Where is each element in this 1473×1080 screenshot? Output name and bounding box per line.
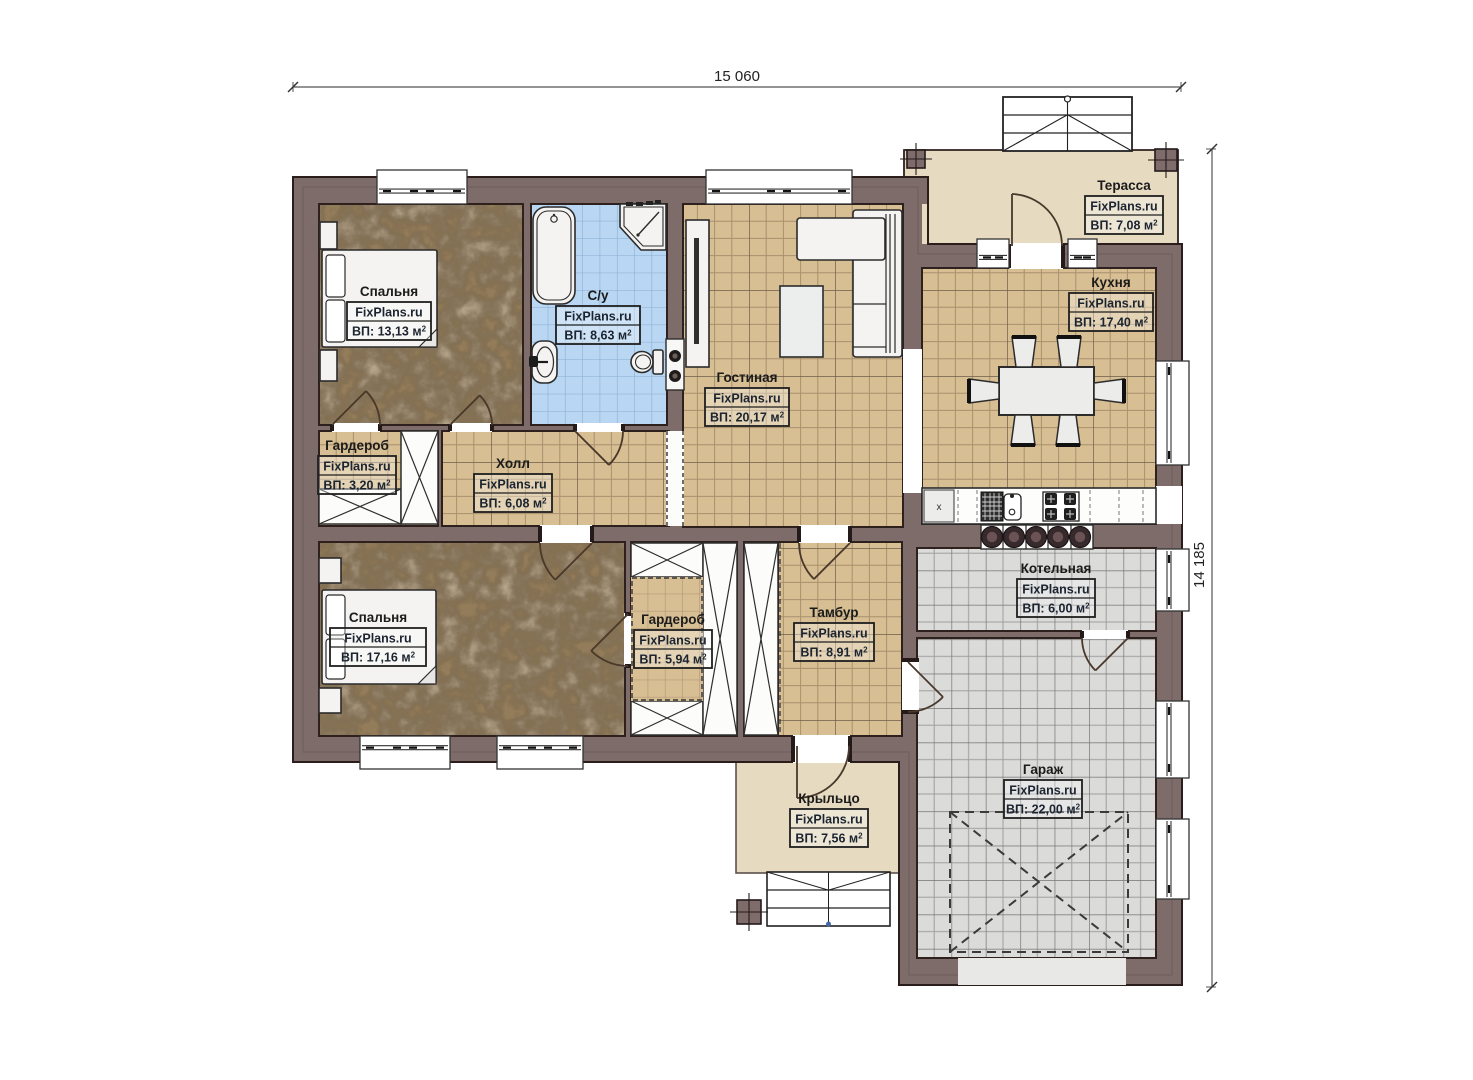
- svg-text:FixPlans.ru: FixPlans.ru: [1022, 583, 1089, 597]
- svg-text:Спальня: Спальня: [360, 284, 418, 299]
- svg-text:ВП: 6,08 м2: ВП: 6,08 м2: [479, 497, 547, 511]
- svg-text:ВП: 3,20 м2: ВП: 3,20 м2: [323, 479, 391, 493]
- svg-text:Терасса: Терасса: [1097, 178, 1151, 193]
- svg-text:FixPlans.ru: FixPlans.ru: [1090, 200, 1157, 214]
- svg-text:Крыльцо: Крыльцо: [798, 791, 859, 806]
- svg-text:ВП: 5,94 м2: ВП: 5,94 м2: [639, 653, 707, 667]
- svg-text:FixPlans.ru: FixPlans.ru: [800, 627, 867, 641]
- svg-text:ВП: 13,13 м2: ВП: 13,13 м2: [352, 325, 427, 339]
- svg-text:FixPlans.ru: FixPlans.ru: [713, 392, 780, 406]
- svg-text:Гардероб: Гардероб: [641, 612, 705, 627]
- svg-text:ВП: 17,40 м2: ВП: 17,40 м2: [1074, 316, 1149, 330]
- svg-text:Гараж: Гараж: [1023, 762, 1064, 777]
- svg-text:FixPlans.ru: FixPlans.ru: [564, 310, 631, 324]
- svg-text:ВП: 17,16 м2: ВП: 17,16 м2: [341, 651, 416, 665]
- svg-text:Кухня: Кухня: [1091, 275, 1130, 290]
- svg-text:ВП: 8,63 м2: ВП: 8,63 м2: [564, 329, 632, 343]
- svg-text:FixPlans.ru: FixPlans.ru: [639, 634, 706, 648]
- svg-text:ВП: 7,08 м2: ВП: 7,08 м2: [1090, 219, 1158, 233]
- svg-text:FixPlans.ru: FixPlans.ru: [355, 306, 422, 320]
- svg-text:FixPlans.ru: FixPlans.ru: [795, 813, 862, 827]
- svg-text:Спальня: Спальня: [349, 610, 407, 625]
- svg-text:Котельная: Котельная: [1021, 561, 1092, 576]
- svg-text:x: x: [937, 502, 942, 513]
- svg-text:15 060: 15 060: [714, 68, 760, 85]
- svg-text:ВП: 8,91 м2: ВП: 8,91 м2: [800, 646, 868, 660]
- svg-text:FixPlans.ru: FixPlans.ru: [344, 632, 411, 646]
- svg-text:14 185: 14 185: [1191, 542, 1208, 588]
- svg-text:FixPlans.ru: FixPlans.ru: [479, 478, 546, 492]
- svg-text:С/у: С/у: [587, 288, 609, 303]
- svg-text:ВП: 7,56 м2: ВП: 7,56 м2: [795, 832, 863, 846]
- svg-text:Тамбур: Тамбур: [810, 605, 859, 620]
- svg-text:Гардероб: Гардероб: [325, 438, 389, 453]
- svg-text:Холл: Холл: [496, 456, 530, 471]
- svg-text:Гостиная: Гостиная: [716, 370, 777, 385]
- svg-text:FixPlans.ru: FixPlans.ru: [323, 460, 390, 474]
- svg-text:FixPlans.ru: FixPlans.ru: [1077, 297, 1144, 311]
- svg-text:ВП: 20,17 м2: ВП: 20,17 м2: [710, 411, 785, 425]
- svg-text:FixPlans.ru: FixPlans.ru: [1009, 784, 1076, 798]
- svg-text:ВП: 6,00 м2: ВП: 6,00 м2: [1022, 602, 1090, 616]
- svg-text:ВП: 22,00 м2: ВП: 22,00 м2: [1006, 803, 1081, 817]
